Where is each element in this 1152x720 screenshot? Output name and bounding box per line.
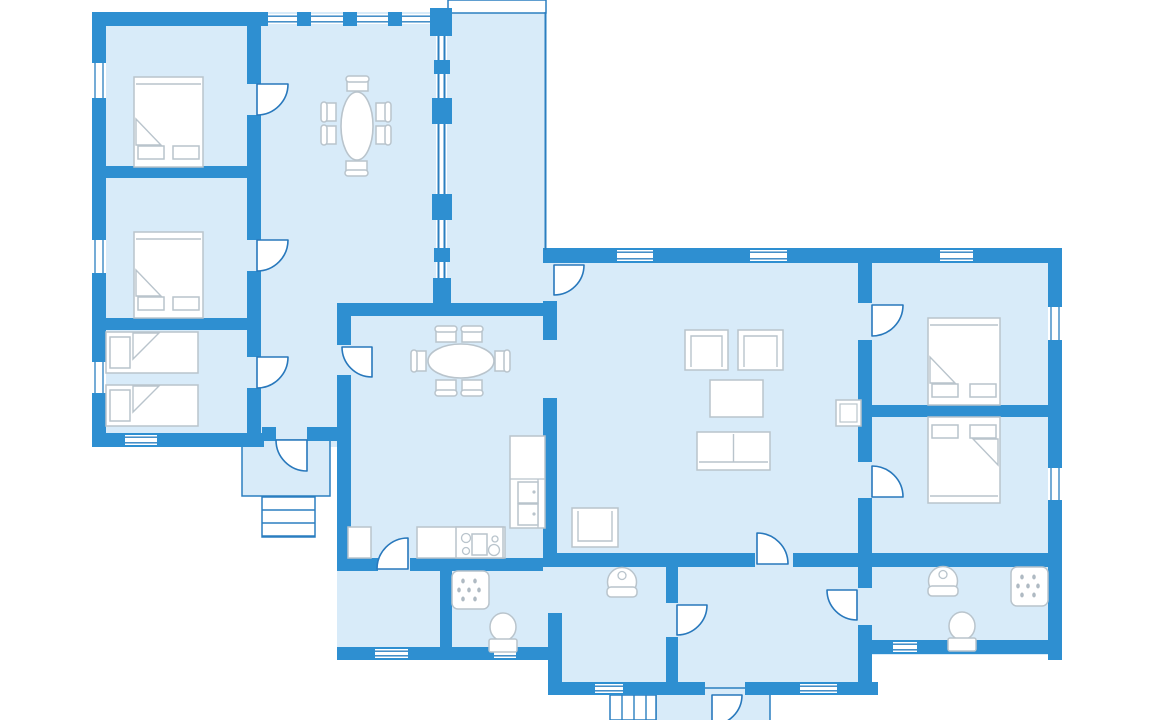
stove-burner bbox=[462, 534, 471, 543]
chair-back bbox=[504, 350, 510, 372]
kitchen-south-wall bbox=[337, 558, 378, 571]
window bbox=[402, 14, 430, 24]
window bbox=[1048, 468, 1062, 500]
washbasin-2-tap bbox=[939, 571, 947, 579]
hall-bottom-wall bbox=[340, 303, 548, 316]
wing-corridor-wall bbox=[247, 271, 261, 357]
chair-back bbox=[321, 125, 327, 145]
single-bed-2-pillow bbox=[110, 390, 130, 421]
double-bed-1-pillow bbox=[138, 146, 164, 159]
bedroom-divider bbox=[106, 166, 247, 178]
toilet-2-tank bbox=[948, 638, 976, 651]
back-steps bbox=[610, 695, 656, 720]
sunroom-post bbox=[434, 248, 450, 262]
stove-burner bbox=[492, 536, 498, 542]
water-drop-icon bbox=[1020, 575, 1024, 580]
window bbox=[893, 642, 917, 652]
west-wing-south-wall bbox=[92, 433, 264, 447]
wing-corridor-wall bbox=[247, 388, 261, 433]
chair-back bbox=[461, 390, 483, 396]
sunroom-floor bbox=[448, 12, 546, 250]
hall-south-wall bbox=[262, 427, 276, 441]
sunroom-post bbox=[433, 278, 451, 303]
washbasin-2-front bbox=[928, 586, 958, 596]
dining-table bbox=[428, 344, 494, 378]
sunroom-post bbox=[432, 194, 452, 220]
terrace-step bbox=[448, 0, 546, 13]
stove-oven bbox=[472, 534, 487, 555]
water-drop-icon bbox=[1016, 584, 1020, 589]
hall-south-wall bbox=[307, 427, 338, 441]
water-drop-icon bbox=[473, 579, 477, 584]
double-bed-4-pillow bbox=[970, 425, 996, 438]
window bbox=[125, 435, 157, 445]
fridge-oven-unit-handle bbox=[532, 512, 535, 515]
kitchen-south-wall bbox=[410, 558, 543, 571]
stove-burner bbox=[463, 548, 470, 555]
wing-corridor-wall bbox=[247, 115, 261, 240]
water-drop-icon bbox=[461, 597, 465, 602]
floor-plan-drawing bbox=[0, 0, 1152, 720]
north-wall-west bbox=[92, 12, 268, 26]
window bbox=[311, 14, 343, 24]
east-bedroom-divider bbox=[870, 405, 1048, 417]
double-bed-3-pillow bbox=[932, 384, 958, 397]
chair-back bbox=[411, 350, 417, 372]
chair-back bbox=[435, 390, 457, 396]
window bbox=[92, 63, 106, 98]
washbasin-1-front bbox=[607, 587, 637, 597]
double-bed-4-pillow bbox=[932, 425, 958, 438]
water-drop-icon bbox=[1032, 593, 1036, 598]
kitchen-west-wall bbox=[337, 303, 351, 345]
bedroom-divider bbox=[106, 318, 247, 330]
single-bed-1-pillow bbox=[110, 337, 130, 368]
water-drop-icon bbox=[1032, 575, 1036, 580]
toilet-2-bowl bbox=[949, 612, 975, 640]
wing-corridor-wall bbox=[247, 26, 261, 84]
sunroom-post bbox=[434, 60, 450, 74]
window bbox=[268, 14, 297, 24]
coffee-table bbox=[710, 380, 763, 417]
water-drop-icon bbox=[467, 588, 471, 593]
living-south-wall bbox=[543, 553, 755, 567]
chair-back bbox=[345, 170, 368, 176]
washbasin-1-tap bbox=[618, 572, 626, 580]
toilet-1-tank bbox=[489, 639, 517, 652]
chair-back bbox=[385, 125, 391, 145]
sunroom-post bbox=[430, 8, 452, 36]
water-drop-icon bbox=[457, 588, 461, 593]
double-bed-3-pillow bbox=[970, 384, 996, 397]
south-center-wall bbox=[548, 682, 705, 695]
water-drop-icon bbox=[1026, 584, 1030, 589]
double-bed-1-pillow bbox=[173, 146, 199, 159]
double-bed-2-pillow bbox=[173, 297, 199, 310]
floor-plan bbox=[0, 0, 1152, 720]
window bbox=[375, 649, 408, 658]
water-drop-icon bbox=[461, 579, 465, 584]
chair-back bbox=[461, 326, 483, 332]
window bbox=[595, 684, 623, 693]
water-drop-icon bbox=[477, 588, 481, 593]
north-wall-pier bbox=[297, 12, 311, 26]
kitchen-cabinet bbox=[348, 527, 371, 558]
window bbox=[92, 362, 106, 393]
living-bedroom-wall bbox=[858, 498, 872, 588]
water-drop-icon bbox=[1036, 584, 1040, 589]
window bbox=[800, 684, 837, 693]
water-drop-icon bbox=[473, 597, 477, 602]
bath1-east-wall bbox=[666, 567, 678, 603]
hall-dining-table bbox=[341, 92, 373, 160]
kitchen-living-wall bbox=[543, 301, 557, 340]
fridge-oven-unit-handle bbox=[532, 490, 535, 493]
window bbox=[1048, 307, 1062, 340]
south-left-wall bbox=[337, 647, 562, 660]
double-bed-2-pillow bbox=[138, 297, 164, 310]
north-wall-pier bbox=[343, 12, 357, 26]
toilet-1-bowl bbox=[490, 613, 516, 641]
window bbox=[92, 240, 106, 273]
window bbox=[357, 14, 388, 24]
living-south-wall bbox=[793, 553, 1062, 567]
chair-back bbox=[435, 326, 457, 332]
chair-back bbox=[385, 102, 391, 122]
sunroom-post bbox=[432, 98, 452, 124]
water-drop-icon bbox=[1020, 593, 1024, 598]
stove-burner bbox=[489, 545, 500, 556]
living-bedroom-wall bbox=[858, 263, 872, 303]
north-wall-pier bbox=[388, 12, 402, 26]
bath1-west-wall bbox=[440, 567, 452, 647]
front-steps bbox=[262, 497, 315, 537]
chair-back bbox=[321, 102, 327, 122]
chair-back bbox=[346, 76, 369, 82]
